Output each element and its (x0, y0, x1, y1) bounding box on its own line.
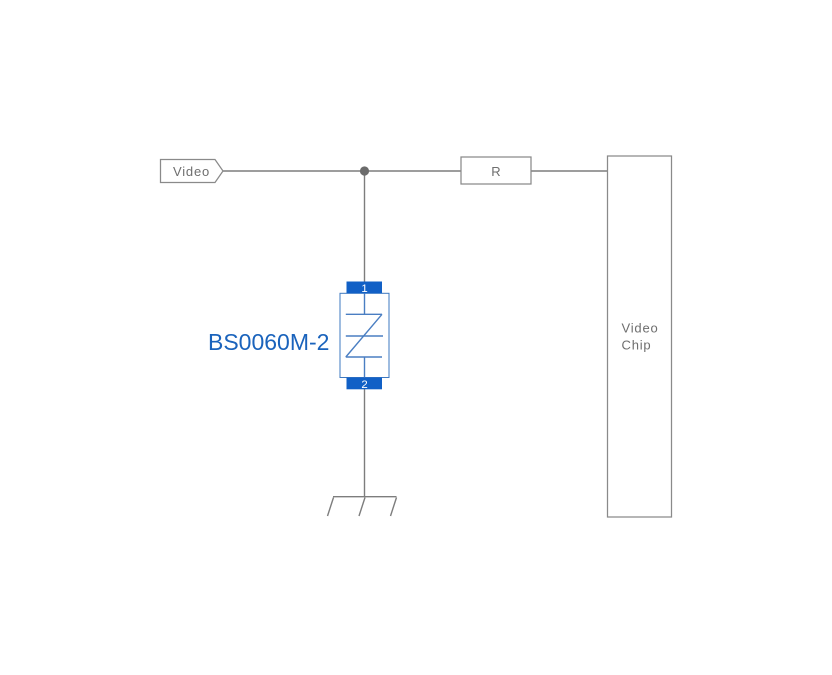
svg-text:Chip: Chip (622, 338, 652, 353)
svg-text:Video: Video (622, 321, 659, 336)
svg-text:R: R (491, 164, 500, 179)
svg-text:Video: Video (173, 164, 210, 179)
svg-text:2: 2 (361, 379, 367, 391)
svg-text:1: 1 (361, 283, 367, 295)
svg-text:BS0060M-2: BS0060M-2 (208, 329, 329, 355)
